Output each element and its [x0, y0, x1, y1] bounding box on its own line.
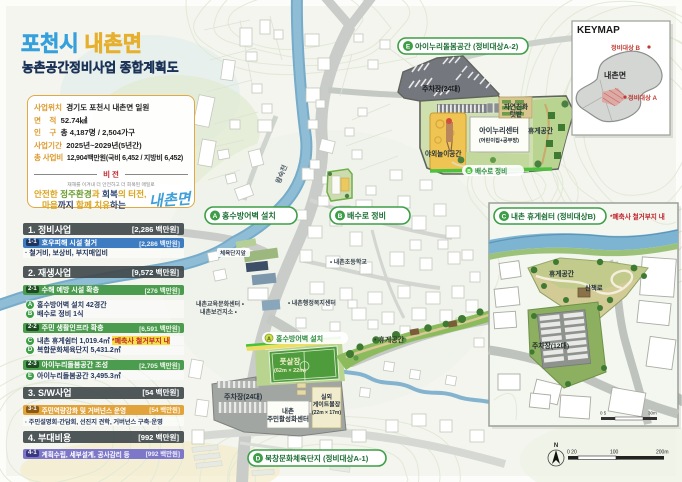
svg-text:배수로 정비: 배수로 정비 [347, 211, 386, 221]
svg-text:KEYMAP: KEYMAP [577, 25, 620, 36]
svg-text:B: B [338, 213, 343, 220]
svg-text:주차장(24대): 주차장(24대) [224, 392, 262, 401]
svg-text:주민활성화센터: 주민활성화센터 [267, 414, 309, 423]
svg-text:풋살장: 풋살장 [280, 356, 301, 366]
svg-text:산책로: 산책로 [585, 283, 603, 292]
svg-text:E: E [406, 44, 411, 51]
svg-text:0 20: 0 20 [567, 450, 577, 456]
svg-text:• 휴게공간: • 휴게공간 [374, 335, 405, 344]
svg-text:(어린이집+공부방): (어린이집+공부방) [479, 136, 519, 144]
svg-text:주차장(24대): 주차장(24대) [422, 84, 460, 93]
svg-text:휴게공간: 휴게공간 [528, 126, 554, 135]
svg-text:북창문화체육단지 (정비대상A-1): 북창문화체육단지 (정비대상A-1) [265, 453, 369, 463]
svg-text:30m: 30m [648, 411, 657, 416]
svg-text:정비대상 A: 정비대상 A [628, 94, 657, 102]
svg-text:내촌: 내촌 [282, 406, 294, 415]
svg-text:홍수방어벽 설치: 홍수방어벽 설치 [276, 334, 323, 343]
svg-text:게이트볼장: 게이트볼장 [313, 401, 341, 409]
svg-text:D: D [256, 456, 261, 463]
svg-text:내촌보건지소 •: 내촌보건지소 • [200, 308, 237, 316]
svg-text:100: 100 [610, 450, 619, 456]
svg-text:배수로 정비: 배수로 정비 [475, 167, 507, 176]
svg-text:자연친화: 자연친화 [504, 102, 528, 111]
svg-text:실외: 실외 [321, 393, 332, 401]
svg-text:*폐축사 철거부지 내: *폐축사 철거부지 내 [610, 212, 665, 221]
svg-text:C: C [502, 214, 507, 221]
svg-text:0 5: 0 5 [600, 411, 607, 416]
svg-text:200m: 200m [656, 450, 669, 456]
svg-text:야외놀이공간: 야외놀이공간 [425, 149, 461, 158]
svg-text:A: A [213, 213, 218, 220]
svg-text:N: N [554, 443, 558, 449]
svg-text:내촌면: 내촌면 [604, 70, 626, 80]
svg-text:(62m × 22m): (62m × 22m) [274, 368, 306, 374]
svg-text:홍수방어벽 설치: 홍수방어벽 설치 [222, 211, 276, 221]
svg-text:내촌 휴게쉼터 (정비대상B): 내촌 휴게쉼터 (정비대상B) [511, 211, 596, 221]
svg-text:주차장(12대): 주차장(12대) [532, 341, 569, 350]
svg-text:체육단지앞: 체육단지앞 [220, 249, 247, 257]
svg-text:• 내촌초등학교: • 내촌초등학교 [330, 258, 367, 266]
svg-text:B: B [467, 169, 471, 175]
svg-text:• 내촌행정복지센터: • 내촌행정복지센터 [288, 299, 336, 307]
svg-text:내촌교육문화센터 •: 내촌교육문화센터 • [196, 300, 244, 308]
svg-text:(22m × 17m): (22m × 17m) [312, 410, 341, 416]
svg-text:아이누리센터: 아이누리센터 [479, 126, 519, 135]
svg-text:텃밭: 텃밭 [510, 110, 522, 119]
svg-text:휴게공간: 휴게공간 [549, 269, 575, 278]
svg-text:A: A [267, 337, 271, 343]
svg-text:정비대상 B: 정비대상 B [611, 44, 640, 52]
svg-text:아이누리돌봄공간 (정비대상A-2): 아이누리돌봄공간 (정비대상A-2) [415, 41, 519, 51]
